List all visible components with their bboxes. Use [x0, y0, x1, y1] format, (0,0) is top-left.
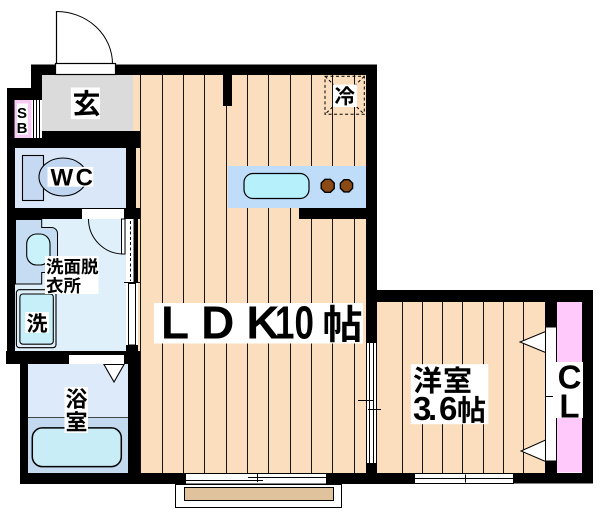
svg-text:L: L	[559, 388, 579, 425]
svg-text:B: B	[17, 120, 28, 137]
svg-text:10: 10	[275, 297, 314, 349]
svg-text:LDK: LDK	[161, 297, 292, 349]
svg-text:.: .	[428, 390, 437, 427]
svg-text:6: 6	[439, 390, 457, 427]
svg-text:WC: WC	[51, 165, 96, 192]
